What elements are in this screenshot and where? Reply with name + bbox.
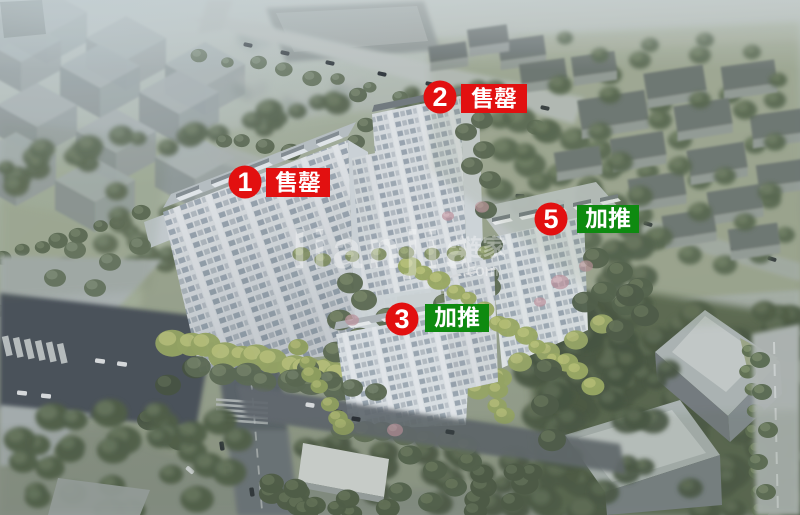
svg-text:5: 5 <box>543 204 558 234</box>
svg-text:.com: .com <box>462 261 499 280</box>
svg-text:3: 3 <box>394 304 409 334</box>
svg-text:lianjia: lianjia <box>292 220 480 280</box>
svg-text:2: 2 <box>432 82 447 112</box>
svg-text:1: 1 <box>237 167 252 197</box>
